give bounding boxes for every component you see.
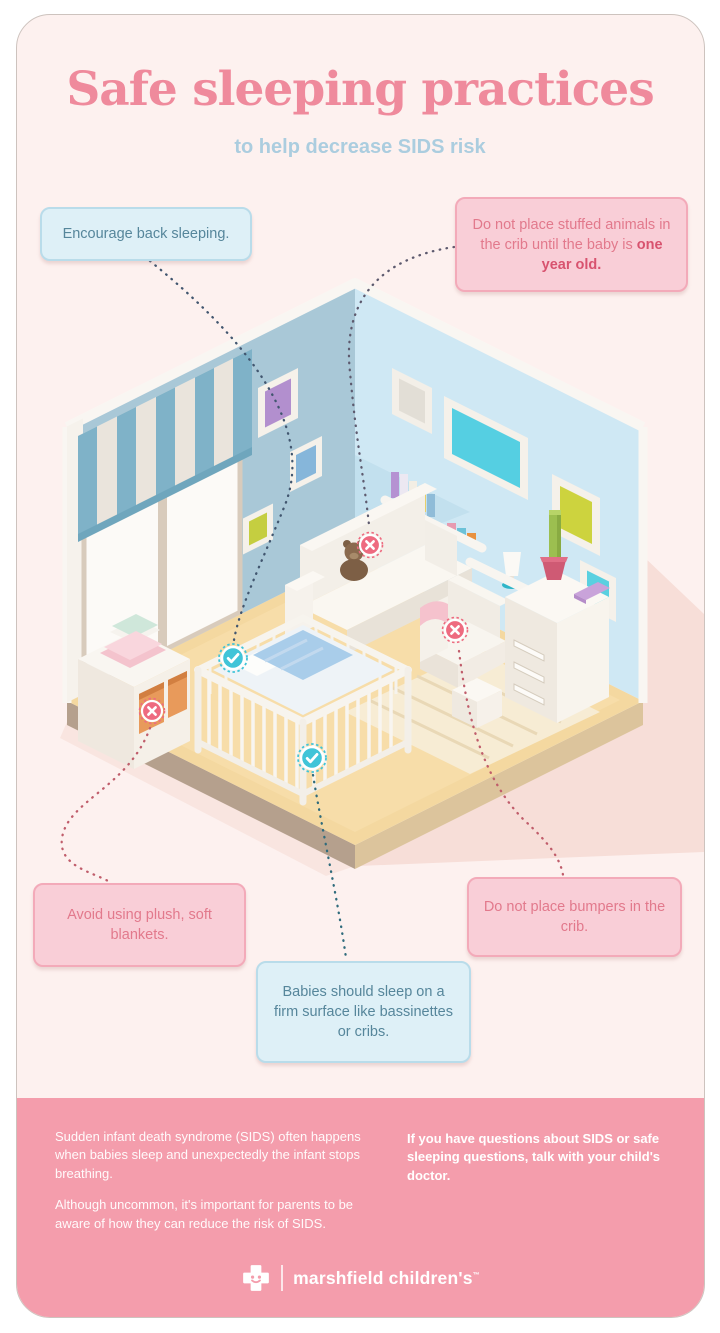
medical-cross-icon: [241, 1263, 271, 1293]
callout-text: Do not place bumpers in the crib.: [481, 897, 668, 937]
logo-text: marshfield children's™: [293, 1268, 480, 1289]
callout-text: Do not place stuffed animals in the crib…: [469, 215, 674, 275]
callout-firm-surface: Babies should sleep on a firm surface li…: [256, 961, 471, 1063]
trademark-symbol: ™: [473, 1272, 480, 1279]
footer-paragraph-1: Sudden infant death syndrome (SIDS) ofte…: [55, 1128, 367, 1183]
page-title: Safe sleeping practices: [0, 62, 720, 117]
callout-back-sleeping: Encourage back sleeping.: [40, 207, 252, 261]
footer-paragraph-2: Although uncommon, it's important for pa…: [55, 1196, 367, 1233]
logo: marshfield children's™: [17, 1263, 704, 1293]
infographic-page: Safe sleeping practices to help decrease…: [0, 0, 720, 1333]
footer-description: Sudden infant death syndrome (SIDS) ofte…: [55, 1128, 367, 1233]
callout-bumpers: Do not place bumpers in the crib.: [467, 877, 682, 957]
callout-text: Babies should sleep on a firm surface li…: [270, 982, 457, 1042]
page-subtitle: to help decrease SIDS risk: [0, 136, 720, 159]
footer-question: If you have questions about SIDS or safe…: [407, 1130, 699, 1185]
callout-stuffed-animals: Do not place stuffed animals in the crib…: [455, 197, 688, 292]
logo-divider: [281, 1265, 283, 1291]
footer: Sudden infant death syndrome (SIDS) ofte…: [17, 1098, 704, 1317]
callout-blankets: Avoid using plush, soft blankets.: [33, 883, 246, 967]
callout-text: Encourage back sleeping.: [63, 224, 230, 244]
callout-text: Avoid using plush, soft blankets.: [47, 905, 232, 945]
